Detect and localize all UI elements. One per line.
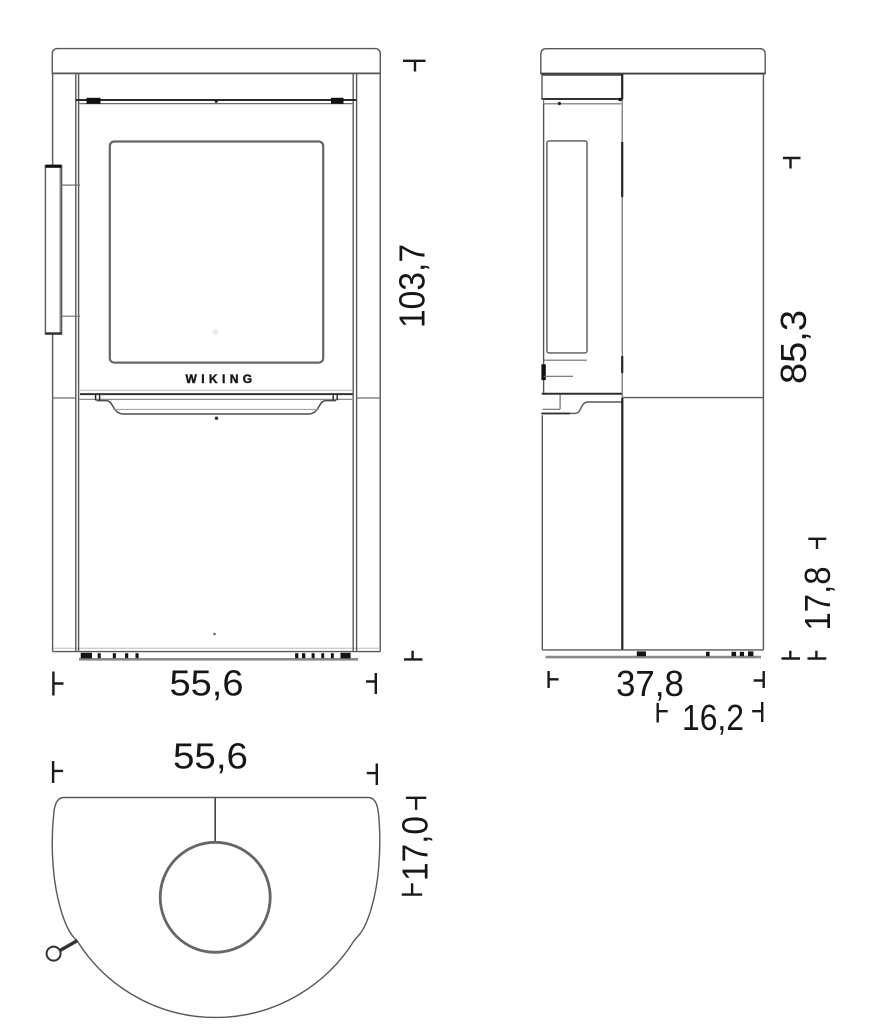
svg-text:85,3: 85,3 xyxy=(773,310,814,384)
svg-text:16,2: 16,2 xyxy=(682,697,744,738)
svg-text:37,8: 37,8 xyxy=(616,663,684,704)
svg-text:17,8: 17,8 xyxy=(797,567,838,631)
svg-text:55,6: 55,6 xyxy=(170,663,244,704)
svg-text:55,6: 55,6 xyxy=(173,736,248,777)
svg-text:103,7: 103,7 xyxy=(392,244,433,328)
svg-text:WIKING: WIKING xyxy=(185,372,256,386)
svg-text:17,0: 17,0 xyxy=(395,816,436,881)
